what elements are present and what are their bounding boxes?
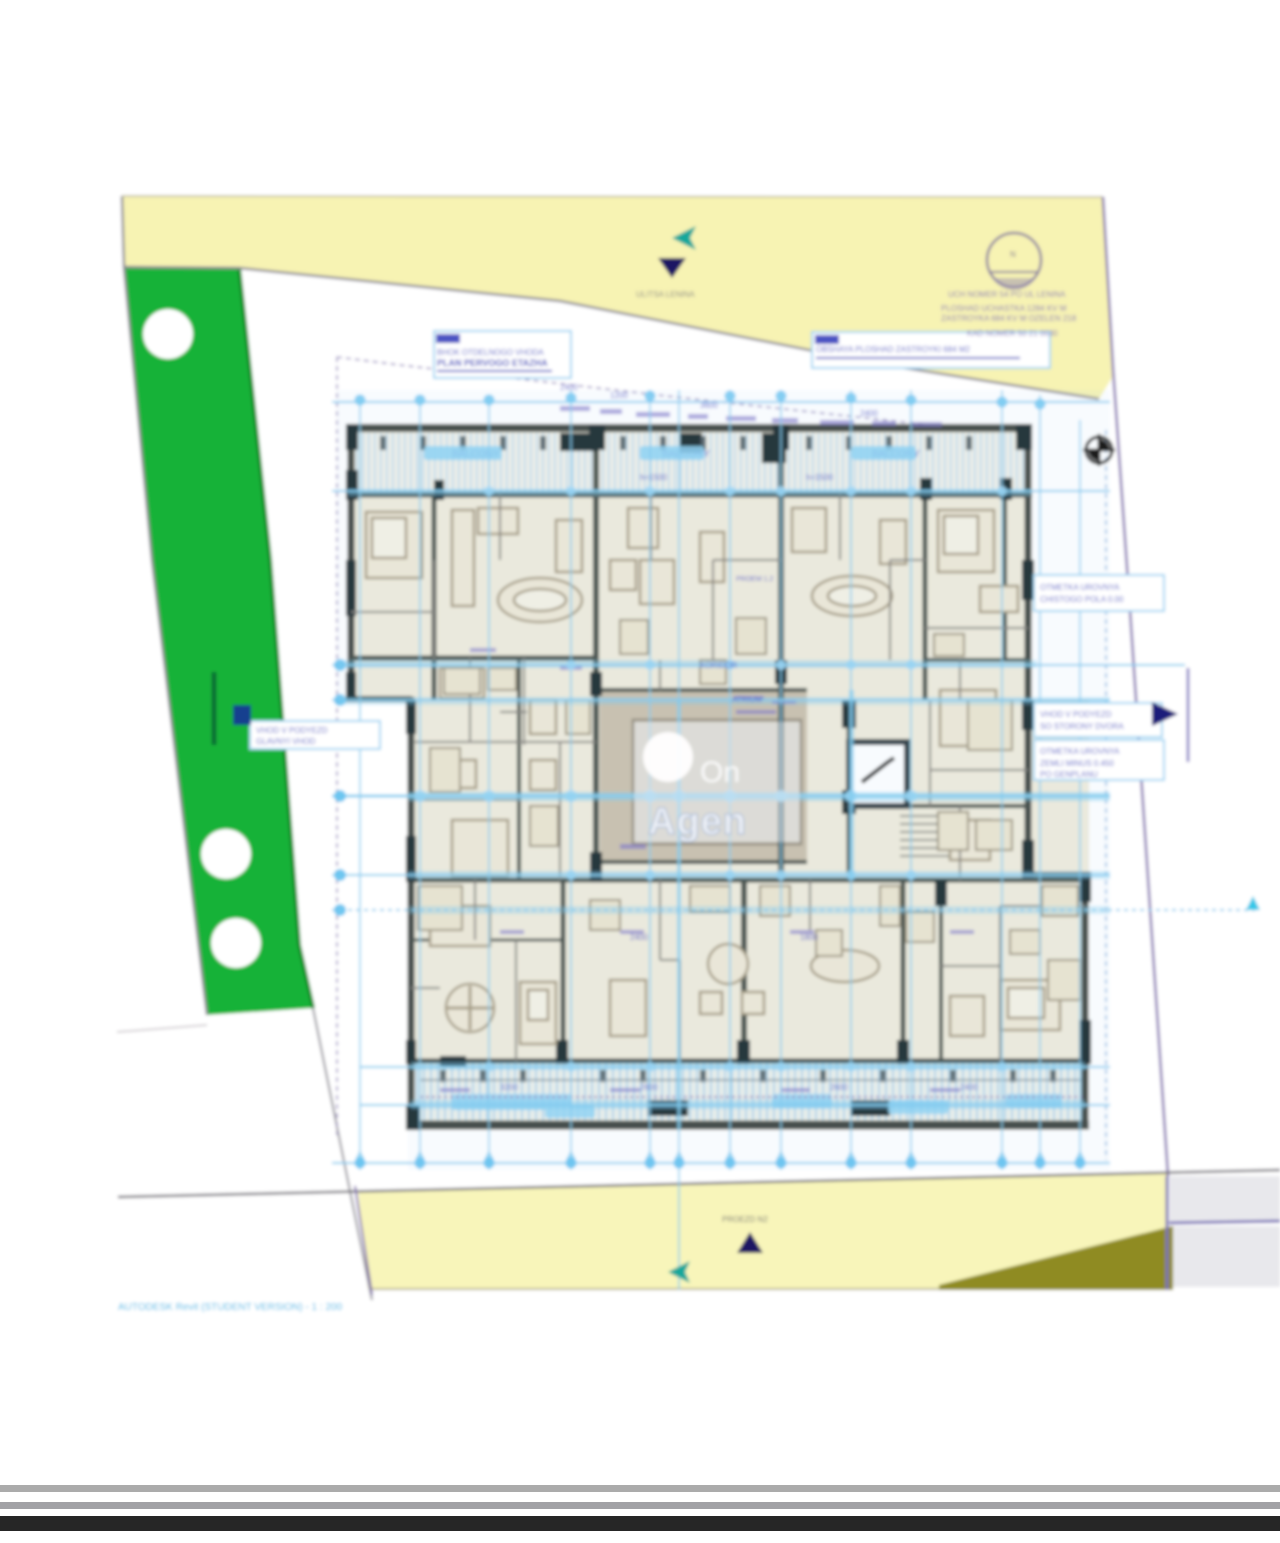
svg-text:OTMETKA UROVNYA: OTMETKA UROVNYA: [1040, 747, 1120, 756]
svg-text:ZEMLI MINUS 0.450: ZEMLI MINUS 0.450: [1040, 759, 1114, 768]
svg-text:N: N: [1010, 250, 1016, 259]
svg-text:1800: 1800: [800, 933, 818, 942]
svg-text:PLOSHAD UCHASTKA 1284 KV M: PLOSHAD UCHASTKA 1284 KV M: [941, 304, 1067, 313]
svg-text:PLAN PERVOGO ETAZHA: PLAN PERVOGO ETAZHA: [437, 358, 548, 368]
svg-text:ULITSA LENINA: ULITSA LENINA: [636, 290, 695, 299]
svg-text:h=1500: h=1500: [640, 473, 667, 482]
svg-text:KAD NOMER 50 21 0030: KAD NOMER 50 21 0030: [967, 329, 1058, 338]
svg-text:2600: 2600: [640, 1083, 658, 1092]
svg-text:CHISTOGO POLA 0.00: CHISTOGO POLA 0.00: [1040, 595, 1124, 604]
svg-text:OBSHAYA PLOSHAD ZASTROYKI 684: OBSHAYA PLOSHAD ZASTROYKI 684 M2: [816, 345, 971, 354]
svg-text:BHOK OTDELNOGO VHODA: BHOK OTDELNOGO VHODA: [437, 348, 544, 357]
svg-text:KORIDOR: KORIDOR: [700, 661, 738, 670]
svg-text:ATRIUM: ATRIUM: [732, 695, 762, 704]
svg-text:GLAVNYI VHOD: GLAVNYI VHOD: [256, 737, 316, 746]
svg-text:UCH NOMER 54 PO UL LENINA: UCH NOMER 54 PO UL LENINA: [948, 290, 1066, 299]
svg-text:2600: 2600: [830, 1083, 848, 1092]
svg-text:2400: 2400: [560, 383, 578, 392]
svg-text:h=1500: h=1500: [806, 473, 833, 482]
svg-text:VHOD V PODYEZD: VHOD V PODYEZD: [256, 726, 328, 735]
svg-text:Agen: Agen: [648, 801, 747, 843]
svg-text:AUTODESK Revit (STUDENT VERSIO: AUTODESK Revit (STUDENT VERSION) - 1 : 2…: [118, 1302, 343, 1313]
svg-text:PROEZD N2: PROEZD N2: [722, 1215, 768, 1224]
svg-text:2400: 2400: [860, 409, 878, 418]
svg-text:PROEM 1.2: PROEM 1.2: [736, 576, 773, 583]
svg-text:PO GENPLANU: PO GENPLANU: [1040, 770, 1098, 779]
svg-text:VHOD V PODYEZD: VHOD V PODYEZD: [1040, 710, 1112, 719]
svg-text:OTMETKA UROVNYA: OTMETKA UROVNYA: [1040, 583, 1120, 592]
svg-text:SO STORONY DVORA: SO STORONY DVORA: [1040, 722, 1124, 731]
svg-text:ZASTROYKA 684 KV M OZELEN 218: ZASTROYKA 684 KV M OZELEN 218: [941, 314, 1077, 323]
svg-text:3600: 3600: [700, 401, 718, 410]
svg-text:1200: 1200: [610, 391, 628, 400]
svg-text:On: On: [700, 756, 740, 789]
svg-text:2400: 2400: [630, 933, 648, 942]
svg-text:2400: 2400: [960, 1083, 978, 1092]
svg-text:3200: 3200: [500, 1083, 518, 1092]
